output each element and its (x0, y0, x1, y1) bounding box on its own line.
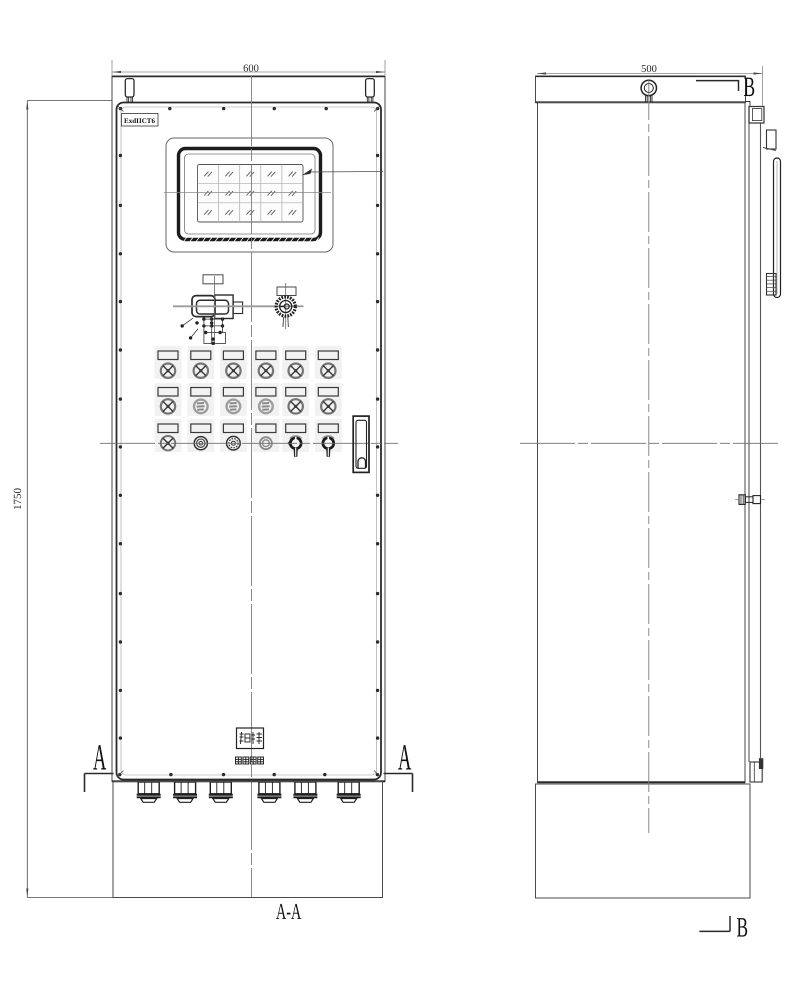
svg-text:600: 600 (243, 64, 259, 75)
svg-text:1750: 1750 (12, 488, 24, 511)
svg-text:ExdIICT6: ExdIICT6 (124, 117, 156, 125)
svg-text:A: A (398, 738, 412, 779)
svg-text:B: B (744, 72, 756, 103)
svg-text:500: 500 (641, 64, 657, 75)
svg-text:A: A (93, 738, 107, 779)
svg-text:A-A: A-A (276, 899, 302, 924)
svg-text:B: B (737, 913, 749, 944)
